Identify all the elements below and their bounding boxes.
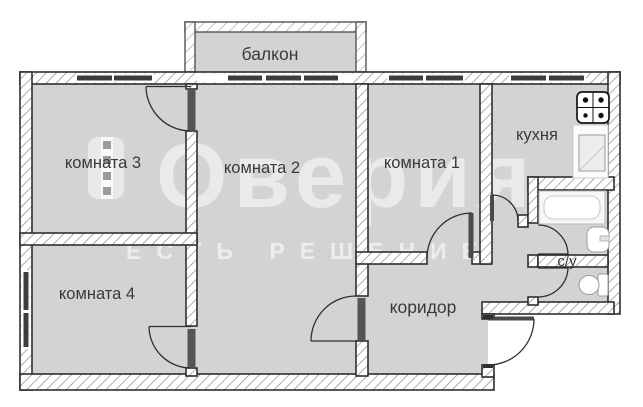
stove-icon: [577, 92, 609, 123]
wall-room3-room4: [20, 233, 197, 245]
room4-label: комната 4: [59, 285, 135, 303]
kitchen-label: кухня: [516, 126, 558, 144]
wall-kitchen-bottom: [528, 177, 614, 190]
window-kitchen: [509, 74, 586, 83]
floor-plan-drawing: Оверия ЕСТЬ РЕШЕНИЕ: [0, 0, 643, 407]
room2-floor: [192, 78, 362, 380]
window-room4: [22, 270, 31, 349]
floor-plan: Оверия ЕСТЬ РЕШЕНИЕ: [0, 0, 643, 407]
room3-label: комната 3: [65, 154, 141, 172]
wall-room1-kitchen: [480, 84, 492, 264]
wall-room2-left-b: [186, 131, 197, 326]
bath-sink-icon: [587, 227, 609, 252]
wall-bath-left-c: [528, 297, 538, 305]
corridor-floor: [362, 258, 488, 380]
bathtub-icon: [539, 191, 605, 224]
window-balcony-block: [197, 74, 354, 83]
wall-room1-bottom-a: [356, 252, 427, 264]
wall-southeast: [482, 302, 614, 314]
door-entrance: [483, 315, 534, 368]
window-room1: [387, 74, 465, 83]
wall-bath-left-b: [528, 255, 538, 267]
wall-bath-left-a: [528, 177, 538, 223]
bathroom-label: с/у: [557, 253, 577, 270]
toilet-icon: [579, 274, 608, 296]
room2-label: комната 2: [224, 159, 300, 177]
wall-room2-right-b: [356, 341, 368, 376]
corridor-label: коридор: [390, 297, 457, 317]
balcony-label: балкон: [242, 44, 299, 64]
wall-nook-bottom: [518, 215, 528, 227]
wall-bottom: [20, 374, 494, 390]
window-room3: [75, 74, 154, 83]
kitchen-sink-icon: [573, 125, 608, 178]
wall-room2-left-c: [186, 368, 197, 376]
room1-label: комната 1: [384, 154, 460, 172]
